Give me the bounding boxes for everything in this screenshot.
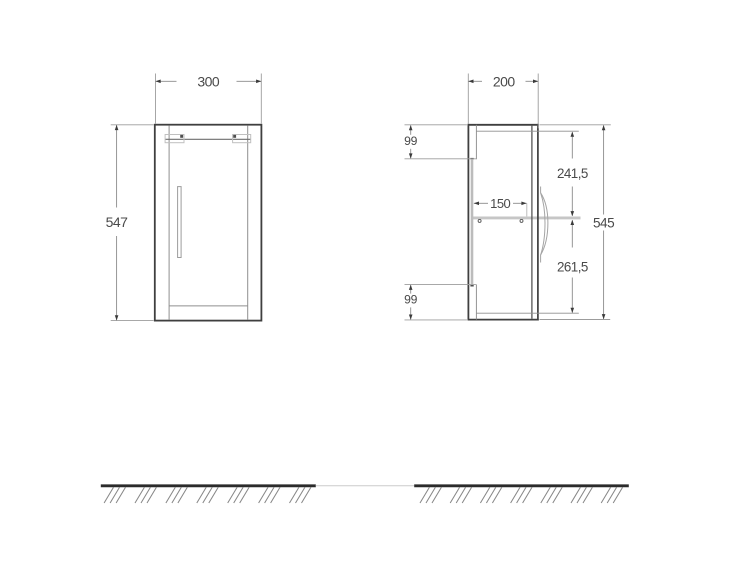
svg-text:200: 200 xyxy=(493,73,516,89)
svg-text:547: 547 xyxy=(106,214,129,230)
svg-text:99: 99 xyxy=(404,293,417,307)
svg-text:261,5: 261,5 xyxy=(557,260,588,275)
svg-text:241,5: 241,5 xyxy=(557,166,588,181)
svg-text:300: 300 xyxy=(197,73,220,89)
svg-text:545: 545 xyxy=(593,216,614,231)
svg-text:99: 99 xyxy=(404,134,417,148)
svg-text:150: 150 xyxy=(490,196,510,211)
